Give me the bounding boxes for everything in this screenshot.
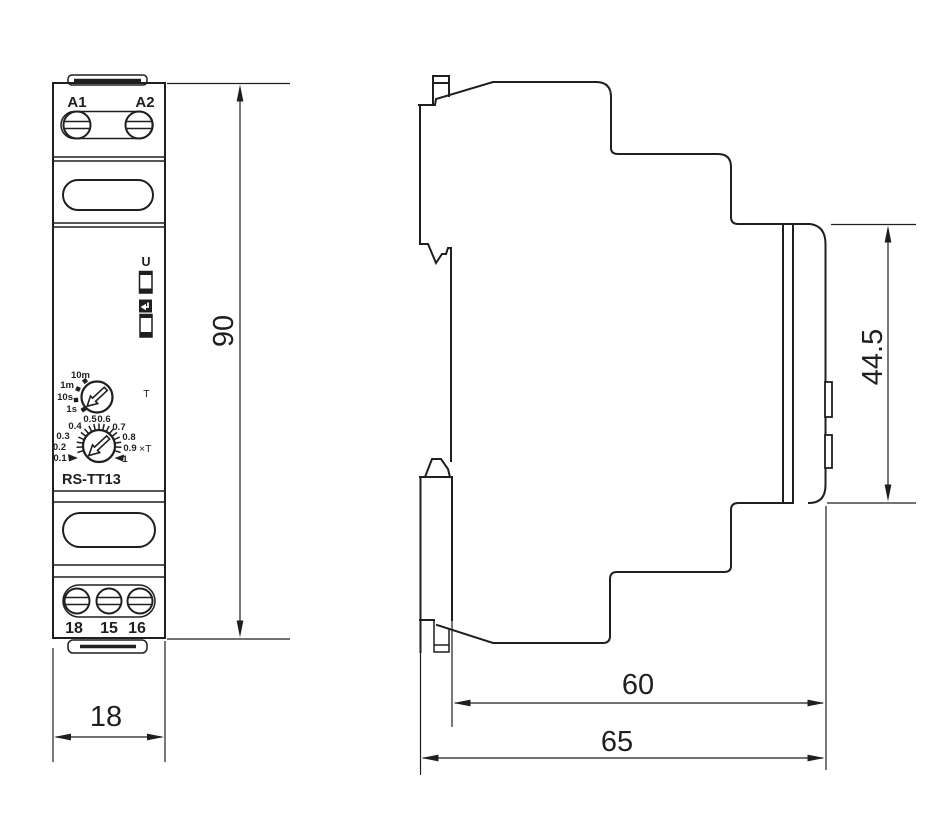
screw-terminal-icon bbox=[64, 112, 91, 139]
dim-body-depth-60: 60 bbox=[452, 506, 826, 770]
mult-label-0-2: 0.2 bbox=[53, 442, 66, 453]
power-indicator-label: U bbox=[141, 255, 150, 269]
dimensional-drawing-page: A1 A2 U bbox=[0, 0, 947, 828]
front-view: A1 A2 U bbox=[53, 75, 165, 653]
top-terminal-block bbox=[61, 112, 153, 139]
terminal-18-label: 18 bbox=[65, 620, 83, 637]
dim-width-18: 18 bbox=[53, 641, 165, 762]
arrowhead-icon bbox=[422, 755, 439, 762]
terminal-a2-label: A2 bbox=[135, 94, 154, 111]
mult-label-0-1: 0.1 bbox=[53, 453, 67, 464]
dim-width-label: 18 bbox=[90, 701, 122, 733]
dim-body-depth-label: 60 bbox=[622, 669, 654, 701]
arrowhead-icon bbox=[237, 621, 244, 638]
mult-label-0-5: 0.5 bbox=[83, 414, 97, 425]
panel-latch-tab bbox=[825, 435, 832, 468]
mult-label-0-3: 0.3 bbox=[56, 431, 69, 442]
terminal-15-label: 15 bbox=[100, 620, 118, 637]
side-body-bottom-outline bbox=[437, 503, 793, 643]
terminal-a1-label: A1 bbox=[67, 94, 86, 111]
bottom-cap bbox=[68, 640, 147, 653]
arrowhead-icon bbox=[885, 226, 892, 243]
dim-height-90: 90 bbox=[167, 84, 290, 640]
mult-label-0-6: 0.6 bbox=[97, 414, 110, 425]
time-range-dial: 10m 1m 10s 1s T bbox=[57, 370, 150, 415]
arrowhead-icon bbox=[54, 734, 71, 741]
mult-label-0-9: 0.9 bbox=[123, 443, 136, 454]
scale-end-arrow-icon bbox=[68, 454, 78, 462]
time-dial-label-1s: 1s bbox=[66, 404, 77, 415]
multiplier-dial: 0.1 0.2 0.3 0.4 0.5 0.6 0.7 0.8 0.9 1 bbox=[53, 414, 152, 465]
arrowhead-icon bbox=[808, 700, 825, 707]
dim-panel-height-label: 44.5 bbox=[857, 329, 889, 385]
multiplier-unit-label: ×T bbox=[139, 443, 152, 455]
screw-terminal-icon bbox=[128, 589, 153, 614]
front-body-outline bbox=[53, 83, 165, 638]
time-unit-label: T bbox=[143, 388, 150, 400]
model-label: RS-TT13 bbox=[62, 472, 121, 488]
screw-terminal-icon bbox=[65, 589, 90, 614]
marking-slot bbox=[63, 513, 155, 547]
time-dial-label-1m: 1m bbox=[60, 380, 74, 391]
power-led-icon bbox=[140, 272, 153, 294]
bottom-terminal-block bbox=[63, 585, 155, 617]
side-view bbox=[419, 76, 832, 652]
terminal-16-label: 16 bbox=[128, 620, 146, 637]
arrowhead-icon bbox=[147, 734, 164, 741]
arrowhead-icon bbox=[237, 85, 244, 102]
dimension-annotations: 90 18 44.5 60 bbox=[53, 84, 916, 776]
dim-total-depth-label: 65 bbox=[601, 726, 633, 758]
screw-terminal-icon bbox=[97, 589, 122, 614]
mult-label-0-4: 0.4 bbox=[68, 421, 82, 432]
marking-slot bbox=[63, 180, 153, 210]
mult-label-0-8: 0.8 bbox=[122, 432, 135, 443]
dim-height-label: 90 bbox=[208, 315, 240, 347]
arrowhead-icon bbox=[454, 700, 471, 707]
time-dial-label-10s: 10s bbox=[57, 392, 73, 403]
front-panel-plate bbox=[783, 224, 832, 503]
panel-latch-tab bbox=[825, 382, 832, 417]
arrowhead-icon bbox=[885, 485, 892, 502]
relay-output-icon bbox=[139, 300, 152, 313]
scale-end-arrow-icon bbox=[115, 455, 125, 462]
arrowhead-icon bbox=[808, 755, 825, 762]
relay-led-icon bbox=[140, 315, 152, 338]
din-hook-notch bbox=[420, 244, 451, 263]
timer-relay-dimensional-drawing: A1 A2 U bbox=[0, 0, 947, 828]
side-body-top-outline bbox=[419, 82, 793, 224]
dim-panel-height-44-5: 44.5 bbox=[827, 225, 916, 504]
din-clip-bump bbox=[425, 459, 450, 477]
screw-terminal-icon bbox=[126, 112, 153, 139]
